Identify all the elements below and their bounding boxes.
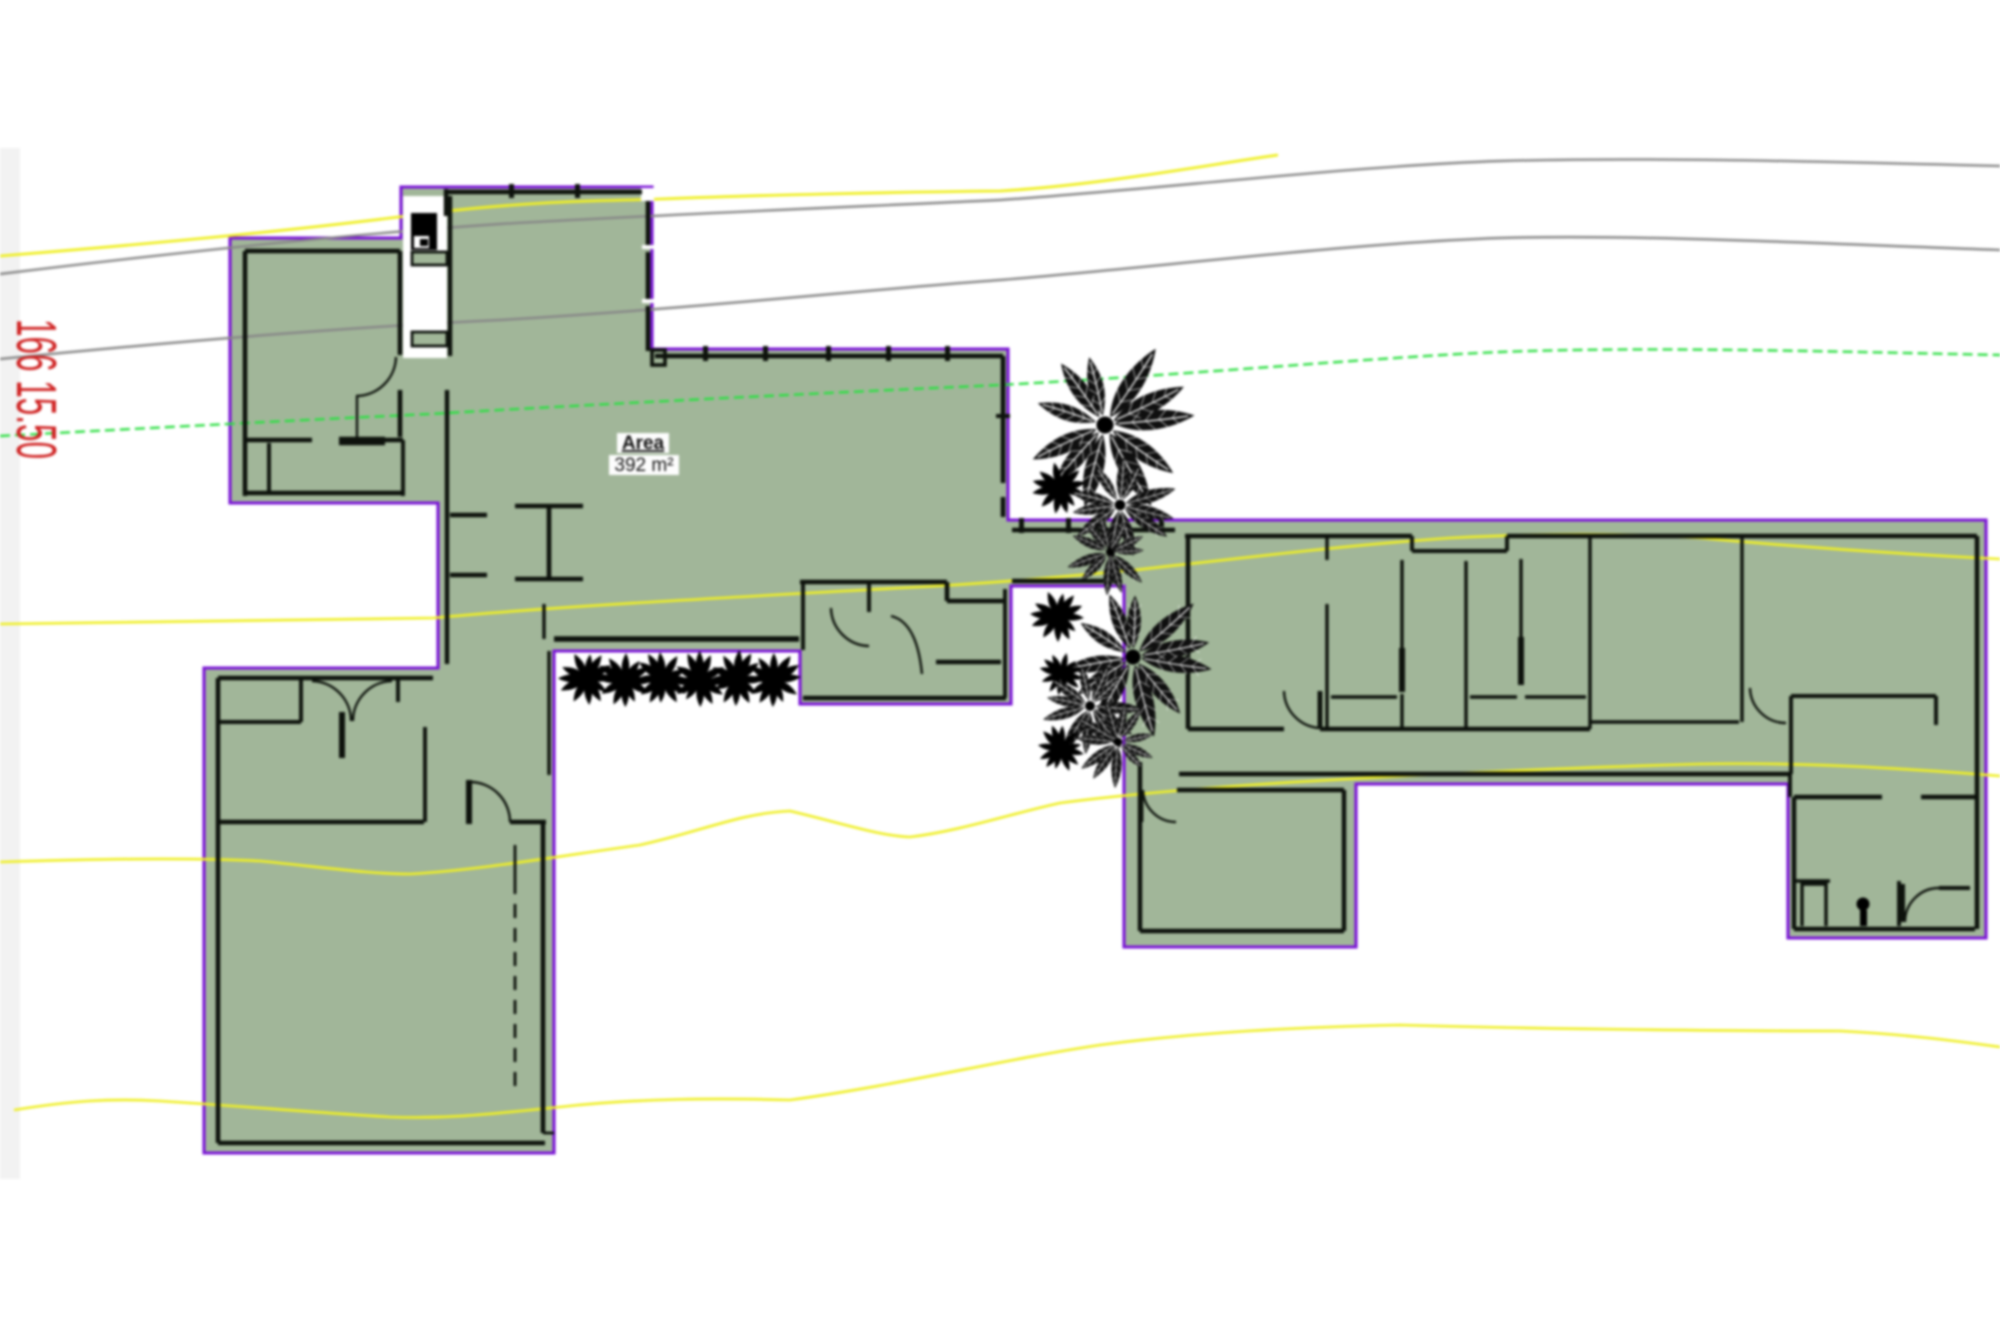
svg-text:Area: Area	[622, 433, 665, 454]
svg-text:166 15.50: 166 15.50	[4, 319, 68, 459]
svg-text:392 m²: 392 m²	[614, 455, 673, 476]
